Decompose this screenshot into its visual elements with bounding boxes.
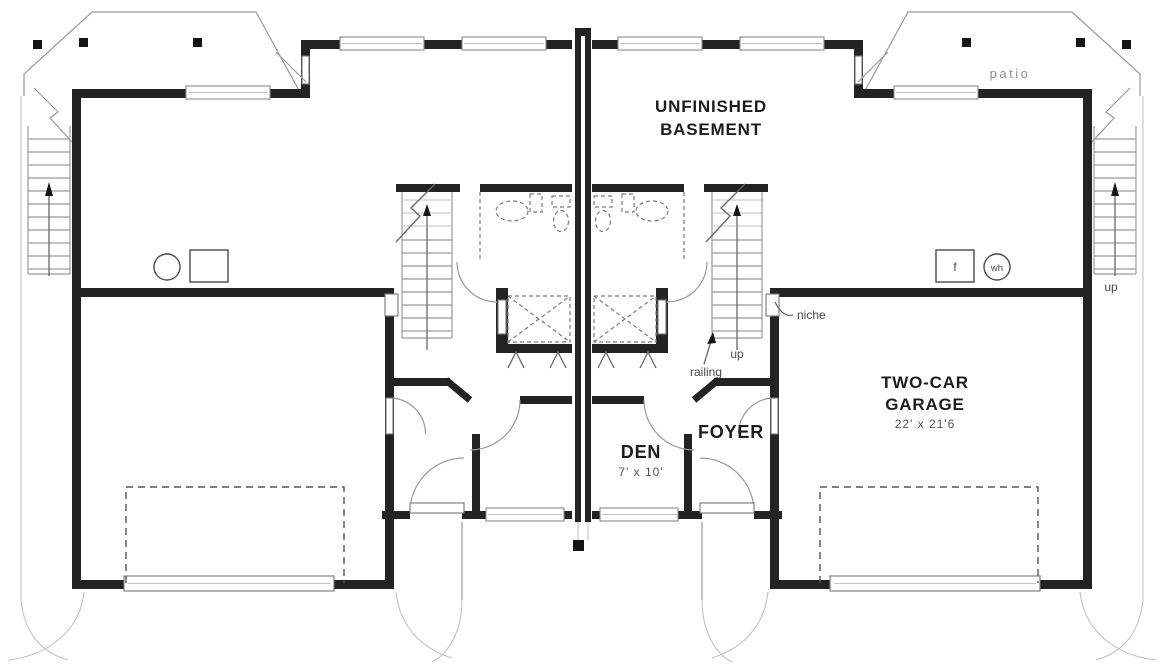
door-leaf [498, 300, 506, 334]
railing-label: railing [690, 365, 722, 379]
left-garage-front-wall [334, 580, 390, 589]
right-interior-stairs: up railing [690, 184, 762, 379]
door-swing [390, 398, 426, 434]
porch-post [573, 540, 584, 551]
door-leaf [658, 300, 666, 334]
right-patio-deck: patio [862, 12, 1140, 96]
left-crossed-box [498, 296, 570, 368]
door-leaf [410, 503, 464, 513]
right-bath-roughin [594, 192, 684, 260]
door-leaf [386, 398, 393, 434]
right-bath-wall [592, 184, 684, 192]
garage-doors [124, 487, 1040, 591]
garage-dimensions: 22' x 21'6 [895, 417, 956, 431]
niche-label: niche [797, 308, 826, 322]
foyer-label: FOYER [698, 422, 764, 442]
right-garage-front-wall [774, 580, 830, 589]
front-porch [432, 522, 732, 662]
furnace-box [190, 250, 228, 282]
den-dimensions: 7' x 10' [618, 465, 663, 479]
right-outer-wall [1083, 89, 1092, 589]
left-unit-interior [154, 52, 570, 513]
sink-roughin [496, 201, 528, 221]
left-outer-wall [72, 89, 81, 589]
left-garage-front-wall [72, 580, 124, 589]
sink-roughin [636, 201, 668, 221]
left-bath-wall [480, 184, 572, 192]
toilet-roughin [554, 211, 569, 232]
deck-post [193, 38, 202, 47]
right-stair-wall [704, 184, 768, 192]
niche-recess [385, 294, 398, 316]
left-den-wall [520, 396, 572, 404]
left-exterior-stairs [28, 88, 72, 276]
door-leaf [771, 398, 778, 434]
door-swing [667, 262, 707, 302]
basement-label-line1: UNFINISHED [655, 97, 767, 116]
deck-post [1122, 40, 1131, 49]
patio-label: patio [990, 66, 1031, 81]
left-patio-deck [24, 12, 302, 96]
garage-ceiling-line [820, 487, 1038, 583]
right-garage-front-wall [1040, 580, 1092, 589]
right-den-wall [592, 396, 644, 404]
door-swing [457, 262, 497, 302]
party-wall [585, 32, 591, 522]
right-exterior-stairs: up [1092, 88, 1136, 294]
exterior-stairs-up-label: up [1104, 280, 1118, 294]
water-heater-label: wh [990, 263, 1003, 274]
duplex-basement-floor-plan: patio up [0, 0, 1159, 664]
left-garage-back-wall [72, 288, 394, 297]
left-bath-roughin [480, 192, 570, 260]
door-leaf [700, 503, 754, 513]
water-heater [154, 254, 180, 280]
deck-post [33, 40, 42, 49]
garage-label-line2: GARAGE [885, 395, 964, 414]
basement-label-line2: BASEMENT [660, 120, 762, 139]
site-outline-lines [8, 96, 1156, 660]
left-interior-stairs [396, 184, 452, 350]
right-crossed-box [594, 296, 666, 368]
deck-post [79, 38, 88, 47]
den-label: DEN [621, 442, 661, 462]
windows [186, 37, 978, 521]
party-wall [575, 32, 581, 522]
right-garage-back-wall [770, 288, 1092, 297]
deck-post [962, 38, 971, 47]
deck-post [1076, 38, 1085, 47]
walls [72, 28, 1092, 589]
stairs-up-label: up [730, 347, 744, 361]
garage-ceiling-line [126, 487, 344, 583]
toilet-roughin [596, 211, 611, 232]
garage-label-line1: TWO-CAR [881, 373, 969, 392]
